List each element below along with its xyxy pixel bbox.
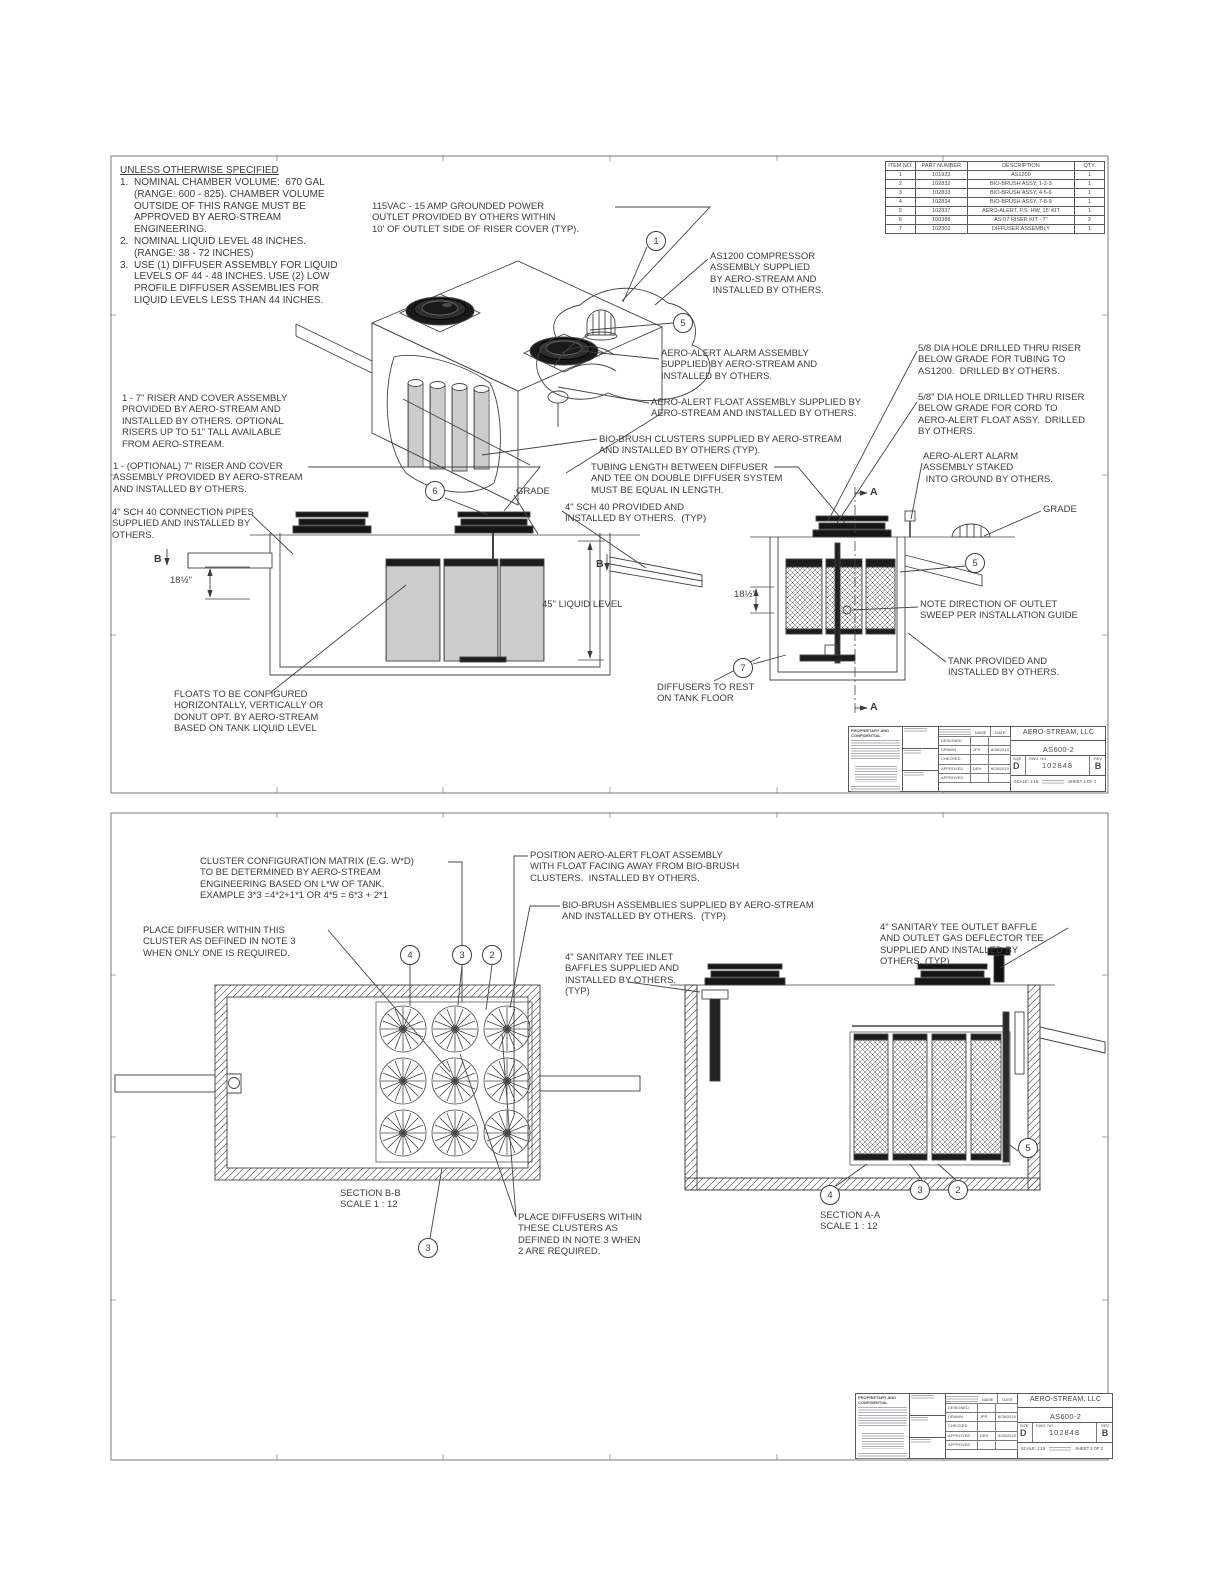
section-aa-label: SECTION A-A SCALE 1 : 12 — [820, 1210, 880, 1233]
comments-block — [910, 1394, 946, 1458]
scale-sheet-row: SCALE: 1:16 SHEET 2 OF 2 — [1018, 1442, 1113, 1454]
callout-tubing-length: TUBING LENGTH BETWEEN DIFFUSER AND TEE O… — [591, 462, 782, 496]
callout-hole-cord: 5/8" DIA HOLE DRILLED THRU RISER BELOW G… — [918, 392, 1085, 438]
drawing-id-block: AERO-STREAM, LLC AS600-2 SIZED DWG. NO.1… — [1011, 727, 1106, 791]
date-header: DATE — [998, 1394, 1017, 1403]
rev-cell: REVB — [1090, 756, 1106, 775]
balloon-item-7: 7 — [733, 658, 753, 678]
note-item: 2.NOMINAL LIQUID LEVEL 48 INCHES. (RANGE… — [120, 236, 378, 260]
table-row: 2102832BIO-BRUSH ASSY, 1-2-31 — [886, 180, 1105, 189]
table-row: 1101923AS12001 — [886, 171, 1105, 180]
drawing-title: AS600-2 — [1011, 740, 1106, 755]
scale-text: SCALE: 1:16 — [1014, 779, 1038, 784]
notes-title: UNLESS OTHERWISE SPECIFIED — [120, 165, 378, 176]
col-item-no: ITEM NO. — [886, 162, 916, 171]
dwg-no-cell: DWG. NO.102848 — [1033, 1423, 1097, 1442]
drawn-date: 8/28/2019 — [996, 1413, 1018, 1422]
section-letter-a-top: A — [870, 486, 878, 499]
note-number: 3. — [120, 260, 134, 307]
sheet-1: UNLESS OTHERWISE SPECIFIED 1.NOMINAL CHA… — [110, 155, 1110, 795]
comments-block — [903, 727, 939, 791]
callout-sch40: 4" SCH 40 PROVIDED AND INSTALLED BY OTHE… — [565, 502, 706, 525]
row-designed: DESIGNED — [946, 1404, 978, 1413]
dim-18-left: 18½" — [170, 575, 192, 586]
approved2-name — [971, 774, 989, 783]
col-part-number: PART NUMBER — [915, 162, 967, 171]
title-block: PROPRIETARY AND CONFIDENTIAL NAME DATE D… — [855, 1393, 1113, 1459]
col-description: DESCRIPTION — [967, 162, 1074, 171]
balloon-item-5-aa: 5 — [1018, 1138, 1038, 1158]
designed-name — [978, 1404, 996, 1413]
drawing-title: AS600-2 — [1018, 1407, 1113, 1422]
parts-header-row: ITEM NO. PART NUMBER DESCRIPTION QTY. — [886, 162, 1105, 171]
approved-date: 8/28/2019 — [989, 765, 1011, 774]
parts-table: ITEM NO. PART NUMBER DESCRIPTION QTY. 11… — [885, 161, 1105, 234]
approved2-date — [996, 1441, 1018, 1450]
balloon-item-6: 6 — [425, 481, 445, 501]
size-cell: SIZED — [1011, 756, 1026, 775]
proprietary-block: PROPRIETARY AND CONFIDENTIAL — [849, 727, 903, 791]
signature-block: NAME DATE DESIGNED DRAWNJPS8/28/2019 CHE… — [946, 1394, 1018, 1458]
balloon-item-4-aa: 4 — [820, 1185, 840, 1205]
approved2-name — [978, 1441, 996, 1450]
name-header: NAME — [971, 727, 991, 736]
row-drawn: DRAWN — [939, 746, 971, 755]
table-row: 3102833BIO-BRUSH ASSY, 4-5-61 — [886, 189, 1105, 198]
row-approved-2: APPROVED — [946, 1441, 978, 1450]
row-approved-2: APPROVED — [939, 774, 971, 783]
table-row: 6100388AS-07 RISER KIT - 7"2 — [886, 216, 1105, 225]
proprietary-heading: PROPRIETARY AND CONFIDENTIAL — [858, 1396, 907, 1406]
weight-text — [1042, 780, 1064, 784]
callout-float-assembly: AERO-ALERT FLOAT ASSEMBLY SUPPLIED BY AE… — [651, 397, 861, 420]
callout-inlet-baffles: 4" SANITARY TEE INLET BAFFLES SUPPLIED A… — [565, 952, 679, 998]
note-number: 1. — [120, 177, 134, 236]
callout-power-outlet: 115VAC - 15 AMP GROUNDED POWER OUTLET PR… — [372, 201, 579, 235]
drawing-page: { "titleblock": { "proprietary": "PROPRI… — [0, 0, 1225, 1585]
row-approved: APPROVED — [939, 765, 971, 774]
dim-18-right: 18½" — [734, 589, 756, 600]
callout-tank-provided: TANK PROVIDED AND INSTALLED BY OTHERS. — [948, 656, 1059, 679]
callout-connection-pipes: 4" SCH 40 CONNECTION PIPES SUPPLIED AND … — [112, 507, 254, 541]
general-notes: UNLESS OTHERWISE SPECIFIED 1.NOMINAL CHA… — [120, 165, 378, 307]
section-letter-a-bottom: A — [870, 701, 878, 714]
balloon-item-5b: 5 — [965, 553, 985, 573]
size-value: D — [1013, 761, 1020, 771]
row-checked: CHECKED — [946, 1422, 978, 1431]
tolerance-fine-print — [862, 1433, 904, 1449]
section-letter-b-left: B — [154, 553, 162, 566]
approved2-date — [989, 774, 1011, 783]
row-designed: DESIGNED — [939, 737, 971, 746]
table-row: 7102302DIFFUSER ASSEMBLY1 — [886, 225, 1105, 234]
sheet-2: CLUSTER CONFIGURATION MATRIX (E.G. W*D) … — [110, 812, 1110, 1462]
finish-fine-print — [851, 786, 900, 794]
company-name: AERO-STREAM, LLC — [1011, 727, 1106, 736]
row-checked: CHECKED — [939, 755, 971, 764]
approved-date: 8/28/2019 — [996, 1432, 1018, 1441]
approved-name: DEH — [978, 1432, 996, 1441]
callout-biobrush-assemblies: BIO-BRUSH ASSEMBLIES SUPPLIED BY AERO-ST… — [562, 900, 814, 923]
callout-alarm-staked: AERO-ALERT ALARM ASSEMBLY STAKED INTO GR… — [923, 451, 1053, 485]
designed-date — [996, 1404, 1018, 1413]
tolerance-fine-print — [855, 766, 897, 782]
checked-date — [996, 1422, 1018, 1431]
callout-cluster-matrix: CLUSTER CONFIGURATION MATRIX (E.G. W*D) … — [200, 856, 414, 902]
proprietary-block: PROPRIETARY AND CONFIDENTIAL — [856, 1394, 910, 1458]
sheet-number: SHEET 1 OF 2 — [1068, 779, 1096, 784]
size-cell: SIZED — [1018, 1423, 1033, 1442]
note-item: 1.NOMINAL CHAMBER VOLUME: 670 GAL (RANGE… — [120, 177, 378, 236]
balloon-item-1: 1 — [646, 231, 666, 251]
dim-liquid-level: 45" LIQUID LEVEL — [542, 599, 622, 610]
rev-value: B — [1095, 761, 1102, 771]
update-note — [946, 1396, 978, 1402]
sheet-number: SHEET 2 OF 2 — [1075, 1446, 1103, 1451]
callout-floats-config: FLOATS TO BE CONFIGURED HORIZONTALLY, VE… — [174, 689, 323, 735]
note-text: NOMINAL CHAMBER VOLUME: 670 GAL (RANGE: … — [134, 177, 325, 236]
note-text: USE (1) DIFFUSER ASSEMBLY FOR LIQUID LEV… — [134, 260, 338, 307]
table-row: 4102834BIO-BRUSH ASSY, 7-8-91 — [886, 198, 1105, 207]
balloon-item-5: 5 — [673, 313, 693, 333]
designed-date — [989, 737, 1011, 746]
title-block: PROPRIETARY AND CONFIDENTIAL NAME DATE D… — [848, 726, 1106, 792]
company-name: AERO-STREAM, LLC — [1018, 1394, 1113, 1403]
checked-name — [978, 1422, 996, 1431]
update-note — [939, 729, 971, 735]
drawn-name: JPS — [978, 1413, 996, 1422]
col-qty: QTY. — [1075, 162, 1105, 171]
legal-fine-print — [851, 740, 900, 760]
checked-date — [989, 755, 1011, 764]
balloon-item-3-bottom: 3 — [418, 1238, 438, 1258]
callout-biobrush-clusters: BIO-BRUSH CLUSTERS SUPPLIED BY AERO-STRE… — [599, 434, 842, 457]
finish-fine-print — [858, 1453, 907, 1461]
name-header: NAME — [978, 1394, 998, 1403]
rev-value: B — [1102, 1428, 1109, 1438]
callout-hole-tubing: 5/8 DIA HOLE DRILLED THRU RISER BELOW GR… — [918, 343, 1081, 377]
weight-text — [1049, 1447, 1071, 1451]
callout-place-diffuser-one: PLACE DIFFUSER WITHIN THIS CLUSTER AS DE… — [143, 925, 296, 959]
callout-riser-cover: 1 - 7" RISER AND COVER ASSEMBLY PROVIDED… — [122, 393, 287, 450]
row-drawn: DRAWN — [946, 1413, 978, 1422]
balloon-item-3: 3 — [452, 945, 472, 965]
callout-position-float: POSITION AERO-ALERT FLOAT ASSEMBLY WITH … — [530, 850, 739, 884]
note-item: 3.USE (1) DIFFUSER ASSEMBLY FOR LIQUID L… — [120, 260, 378, 307]
dwg-no-cell: DWG. NO.102848 — [1026, 756, 1090, 775]
balloon-item-3-aa: 3 — [910, 1180, 930, 1200]
signature-block: NAME DATE DESIGNED DRAWNJPS8/28/2019 CHE… — [939, 727, 1011, 791]
scale-text: SCALE: 1:16 — [1021, 1446, 1045, 1451]
callout-diffusers-rest: DIFFUSERS TO REST ON TANK FLOOR — [657, 682, 754, 705]
date-header: DATE — [991, 727, 1010, 736]
callout-place-diffusers-two: PLACE DIFFUSERS WITHIN THESE CLUSTERS AS… — [518, 1212, 642, 1258]
designed-name — [971, 737, 989, 746]
dwg-number: 102848 — [1036, 1428, 1093, 1437]
callout-alarm-assembly: AERO-ALERT ALARM ASSEMBLY SUPPLIED BY AE… — [661, 348, 817, 382]
balloon-item-2-aa: 2 — [948, 1180, 968, 1200]
label-grade-left: GRADE — [516, 486, 550, 497]
dwg-number: 102848 — [1029, 761, 1086, 770]
drawn-name: JPS — [971, 746, 989, 755]
balloon-item-2: 2 — [482, 945, 502, 965]
section-letter-b-right: B — [596, 558, 604, 571]
section-bb-label: SECTION B-B SCALE 1 : 12 — [340, 1188, 401, 1211]
drawn-date: 8/28/2019 — [989, 746, 1011, 755]
table-row: 5102837AERO-ALERT, P.S. HW, 15' KIT1 — [886, 207, 1105, 216]
approved-name: DEH — [971, 765, 989, 774]
callout-outlet-baffle: 4" SANITARY TEE OUTLET BAFFLE AND OUTLET… — [880, 922, 1044, 968]
balloon-item-4: 4 — [400, 945, 420, 965]
row-approved: APPROVED — [946, 1432, 978, 1441]
drawing-id-block: AERO-STREAM, LLC AS600-2 SIZED DWG. NO.1… — [1018, 1394, 1113, 1458]
proprietary-heading: PROPRIETARY AND CONFIDENTIAL — [851, 729, 900, 739]
rev-cell: REVB — [1097, 1423, 1113, 1442]
note-number: 2. — [120, 236, 134, 260]
callout-optional-riser: 1 - (OPTIONAL) 7" RISER AND COVER ASSEMB… — [113, 461, 303, 495]
callout-outlet-sweep: NOTE DIRECTION OF OUTLET SWEEP PER INSTA… — [920, 599, 1078, 622]
scale-sheet-row: SCALE: 1:16 SHEET 1 OF 2 — [1011, 775, 1106, 787]
label-grade-right: GRADE — [1043, 504, 1077, 515]
size-value: D — [1020, 1428, 1027, 1438]
callout-compressor: AS1200 COMPRESSOR ASSEMBLY SUPPLIED BY A… — [710, 251, 824, 297]
legal-fine-print — [858, 1407, 907, 1427]
note-text: NOMINAL LIQUID LEVEL 48 INCHES. (RANGE: … — [134, 236, 306, 260]
checked-name — [971, 755, 989, 764]
